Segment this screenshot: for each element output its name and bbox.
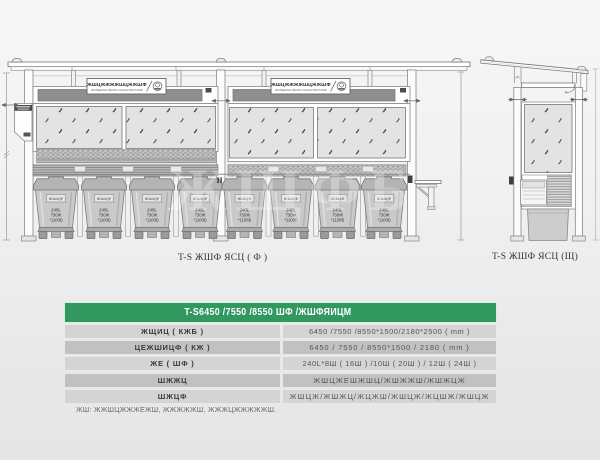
svg-text:HOUSEHOLD WASTE COLLECTION KIO: HOUSEHOLD WASTE COLLECTION KIOSK [275, 88, 327, 92]
svg-text:ЖШЦЖЖЖЖШЦЖЖШФ: ЖШЦЖЖЖЖШЦЖЖШФ [270, 82, 331, 88]
svg-text:ЖШЦЖЖЖЖШЦЖЖШФ: ЖШЦЖЖЖЖШЦЖЖШФ [86, 82, 147, 88]
svg-text:HOUSEHOLD WASTE COLLECTION KIO: HOUSEHOLD WASTE COLLECTION KIOSK [91, 88, 143, 92]
